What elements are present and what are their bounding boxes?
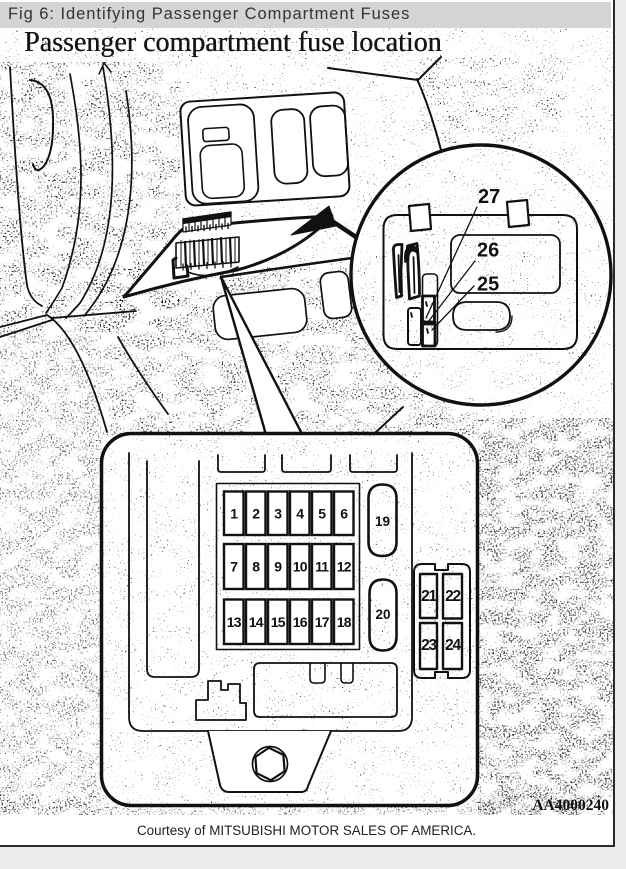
svg-text:14: 14 [249, 614, 264, 630]
svg-text:13: 13 [227, 614, 242, 630]
svg-text:16: 16 [293, 614, 308, 630]
svg-text:9: 9 [274, 559, 282, 575]
svg-text:26: 26 [477, 240, 499, 262]
svg-text:24: 24 [445, 637, 461, 654]
svg-text:23: 23 [421, 637, 437, 654]
svg-text:20: 20 [375, 607, 390, 622]
svg-text:4: 4 [296, 505, 304, 521]
svg-text:27: 27 [478, 186, 500, 208]
svg-text:21: 21 [421, 588, 437, 605]
svg-text:22: 22 [445, 588, 460, 605]
svg-text:10: 10 [293, 559, 308, 575]
svg-text:17: 17 [315, 614, 330, 630]
svg-text:12: 12 [337, 559, 352, 575]
svg-text:1: 1 [230, 505, 238, 521]
svg-text:2: 2 [252, 505, 260, 521]
svg-text:8: 8 [252, 559, 260, 575]
svg-text:19: 19 [375, 514, 390, 529]
svg-text:18: 18 [337, 614, 352, 630]
svg-text:5: 5 [318, 505, 326, 521]
svg-text:3: 3 [274, 505, 282, 521]
svg-text:11: 11 [315, 559, 329, 575]
svg-text:7: 7 [230, 559, 238, 575]
svg-text:6: 6 [340, 505, 348, 521]
svg-text:25: 25 [477, 274, 499, 296]
svg-text:15: 15 [271, 614, 286, 630]
